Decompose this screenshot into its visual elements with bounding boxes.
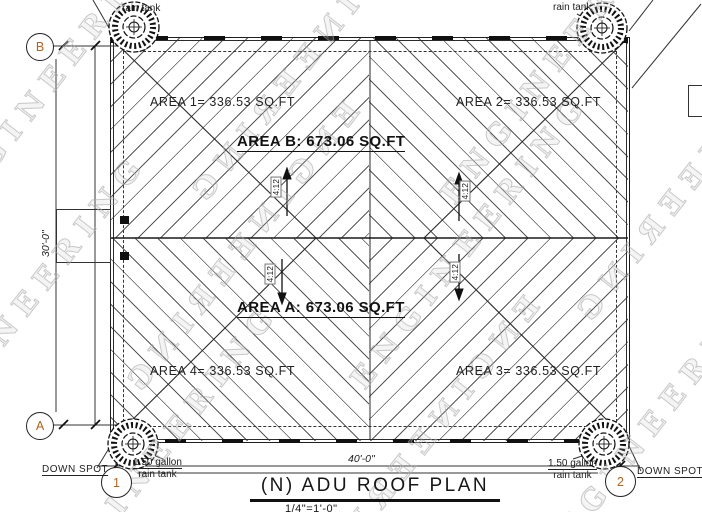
dim-height-label: 30'-0" xyxy=(40,215,52,257)
plan-title: (N) ADU ROOF PLAN xyxy=(250,475,500,497)
grid-bubble-a: A xyxy=(26,412,54,440)
capacity-line2: rain tank xyxy=(133,469,182,480)
gutter-dashes-top xyxy=(111,36,628,40)
down-spot-label: DOWN SPOT xyxy=(637,466,702,478)
gutter-dashes-bottom xyxy=(111,439,628,443)
area-2-label: AREA 2= 336.53 SQ.FT xyxy=(456,95,601,109)
grid-bubble-2: 2 xyxy=(605,466,636,497)
capacity-line2: rain tank xyxy=(548,470,597,481)
area-1-label: AREA 1= 336.53 SQ.FT xyxy=(150,95,295,109)
grid-label-2: 2 xyxy=(617,475,624,489)
grid-label-b: B xyxy=(36,40,44,54)
area-b-label: AREA B: 673.06 SQ.FT xyxy=(237,133,405,152)
grid-label-1: 1 xyxy=(113,476,120,490)
rain-tank-label: rain tank xyxy=(122,3,160,14)
area-3-label: AREA 3= 336.53 SQ.FT xyxy=(456,364,601,378)
grid-label-a: A xyxy=(36,419,44,433)
capacity-line1: 1.50 gallon xyxy=(548,458,597,470)
rain-tank-capacity-label: 1.50 gallon rain tank xyxy=(548,458,597,481)
adu-roof-plan-drawing: ENGINEERING ENGINEERING ENGINEERING ENGI… xyxy=(0,0,702,512)
dim-width-label: 40'-0" xyxy=(348,453,375,465)
rain-tank-capacity-label: 1.50 gallon rain tank xyxy=(133,457,182,480)
slope-label: 4:12 xyxy=(271,177,282,198)
area-a-label: AREA A: 673.06 SQ.FT xyxy=(237,299,405,318)
capacity-line1: 1.50 gallon xyxy=(133,457,182,469)
cutoff-box xyxy=(688,85,702,117)
slope-label: 4:12 xyxy=(460,181,471,202)
down-spot-label: DOWN SPOT xyxy=(42,464,108,476)
slope-label: 4:12 xyxy=(265,264,276,285)
slope-label: 4:12 xyxy=(450,262,461,283)
wall-projection-box xyxy=(56,209,111,263)
plan-scale: 1/4"=1'-0" xyxy=(285,503,338,512)
plan-title-underline xyxy=(250,499,500,502)
grid-bubble-b: B xyxy=(26,33,54,61)
rain-tank-label: rain tank xyxy=(553,2,591,13)
area-4-label: AREA 4= 336.53 SQ.FT xyxy=(150,364,295,378)
